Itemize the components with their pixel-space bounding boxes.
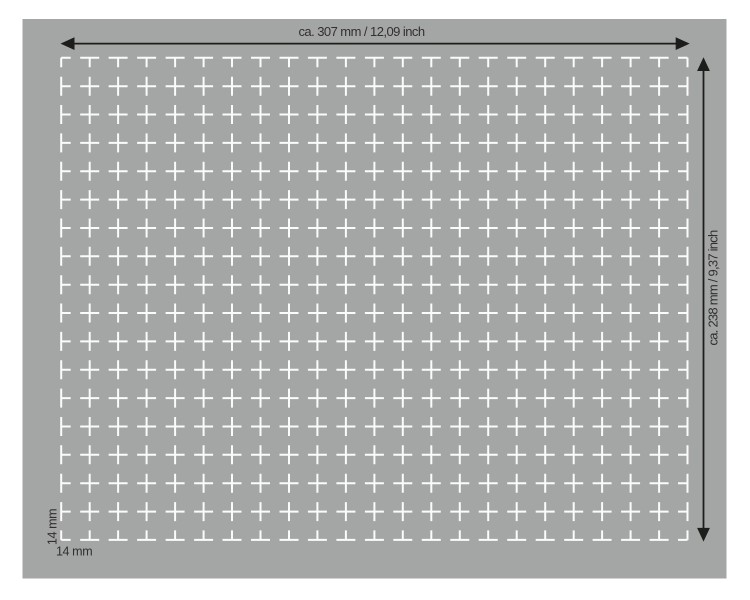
svg-text:14 mm: 14 mm: [46, 509, 60, 545]
svg-text:14 mm: 14 mm: [56, 545, 92, 559]
svg-text:ca. 238 mm / 9,37 inch: ca. 238 mm / 9,37 inch: [706, 230, 721, 346]
svg-text:ca. 307 mm / 12,09 inch: ca. 307 mm / 12,09 inch: [298, 24, 424, 39]
